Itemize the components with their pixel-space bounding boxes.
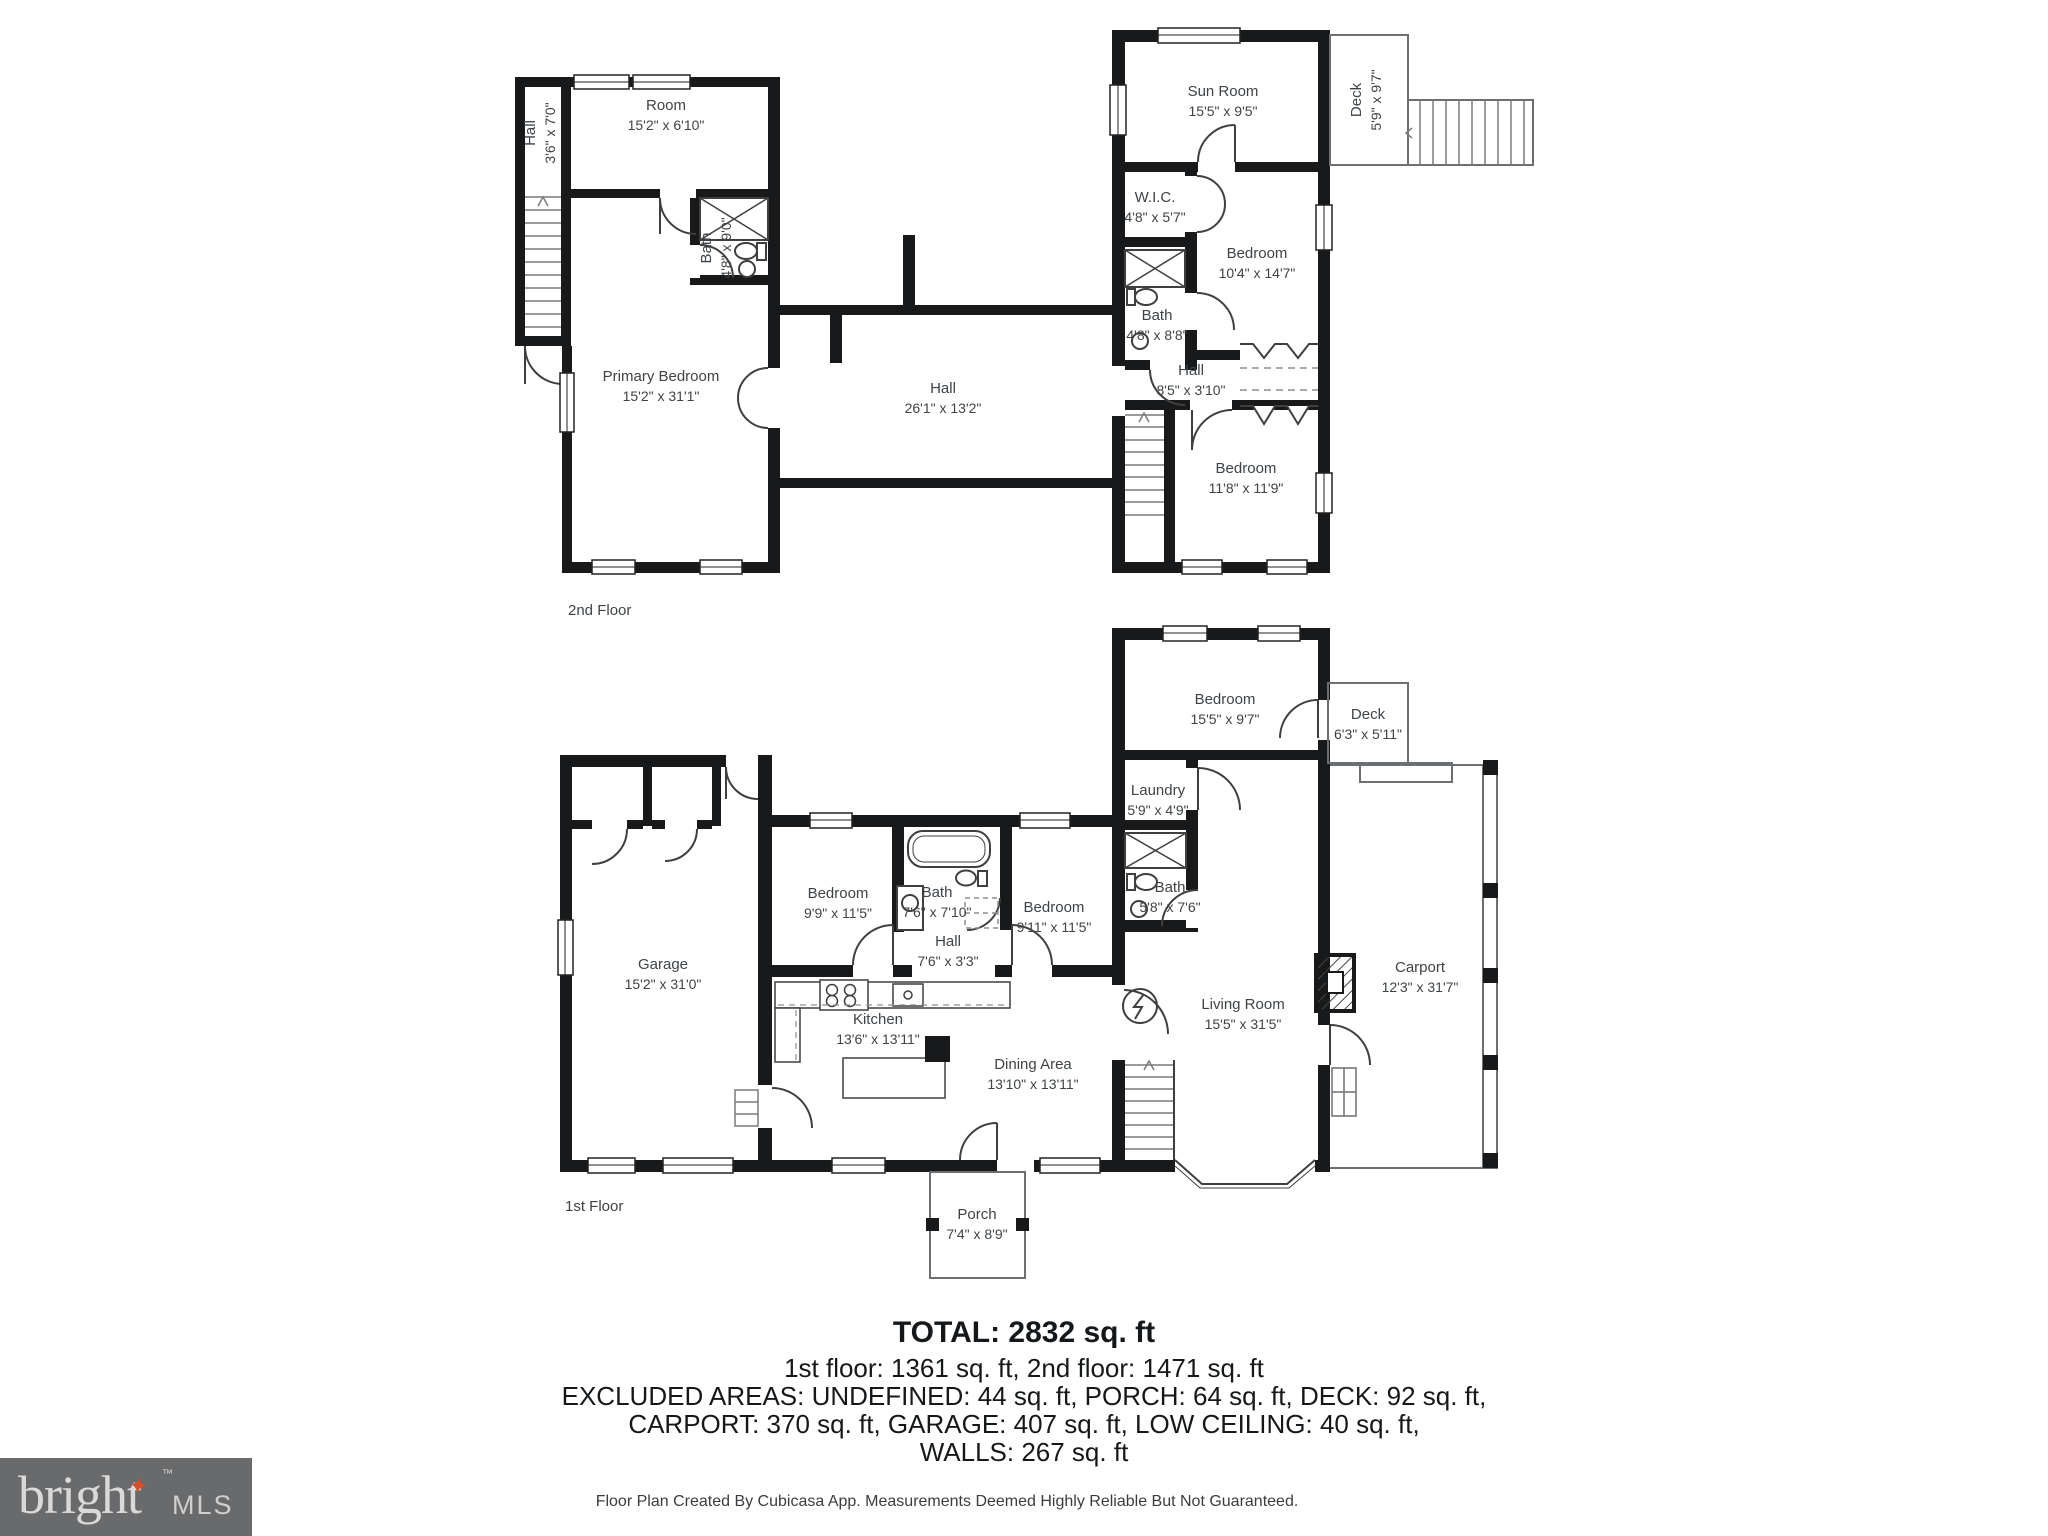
room-label-porch: Porch7'4" x 8'9": [946, 1205, 1007, 1243]
floor2-ext-stairs: [1406, 100, 1524, 165]
logo-trademark: ™: [162, 1468, 173, 1480]
carport-stoop: [1332, 1068, 1356, 1116]
floor2-low-ceiling: [1240, 344, 1318, 424]
floor2-stairs-right: [1125, 413, 1164, 515]
room-label-deck-upper: Deck5'9" x 9'7": [1347, 69, 1385, 130]
room-label-kitchen: Kitchen13'6" x 13'11": [836, 1010, 920, 1048]
disclaimer-text: Floor Plan Created By Cubicasa App. Meas…: [596, 1493, 1299, 1511]
floor-areas: 1st floor: 1361 sq. ft, 2nd floor: 1471 …: [0, 1354, 2048, 1382]
room-label-living-room: Living Room15'5" x 31'5": [1201, 995, 1284, 1033]
room-label-deck-1f: Deck6'3" x 5'11": [1334, 705, 1402, 743]
floor1-label: 1st Floor: [565, 1198, 623, 1215]
room-label-bath-right-1f: Bath5'8" x 7'6": [1139, 878, 1200, 916]
room-label-bedroom-top-1f: Bedroom15'5" x 9'7": [1191, 690, 1260, 728]
room-label-bath-upper-right: Bath4'8" x 8'8": [1126, 306, 1187, 344]
room-label-hall-upper-right: Hall8'5" x 3'10": [1157, 361, 1226, 399]
room-label-bath-upper-left: Bath4'8" x 9'0": [697, 217, 735, 278]
fireplace: [1316, 955, 1354, 1011]
floor1-stairs: [1125, 1060, 1174, 1160]
floor2-fixtures: [735, 243, 1157, 349]
floor2-low-ceiling-dashes: [1240, 368, 1318, 390]
logo-suffix-text: MLS: [172, 1490, 234, 1521]
room-label-hall-upper-left: Hall3'6" x 7'0": [521, 102, 559, 163]
room-label-sun-room: Sun Room15'5" x 9'5": [1188, 82, 1259, 120]
room-label-room: Room15'2" x 6'10": [628, 96, 705, 134]
room-label-bath-mid-1f: Bath7'6" x 7'10": [903, 883, 972, 921]
room-label-wic: W.I.C.4'8" x 5'7": [1124, 188, 1185, 226]
floor-plan-drawing: [0, 0, 2048, 1536]
walls-area: WALLS: 267 sq. ft: [0, 1438, 2048, 1466]
floor-plan-page: { "floors": [ { "label": "2nd Floor", "r…: [0, 0, 2048, 1536]
logo-brand-text: bright: [18, 1464, 141, 1526]
bright-mls-logo: bright ✦ ™ MLS: [0, 1458, 252, 1536]
logo-star-icon: ✦: [126, 1471, 150, 1503]
room-label-dining-area: Dining Area13'10" x 13'11": [987, 1055, 1078, 1093]
room-label-bedroom-lower-right: Bedroom11'8" x 11'9": [1209, 459, 1284, 497]
excluded-areas-2: CARPORT: 370 sq. ft, GARAGE: 407 sq. ft,…: [0, 1410, 2048, 1438]
area-summary: TOTAL: 2832 sq. ft 1st floor: 1361 sq. f…: [0, 1317, 2048, 1466]
room-label-bedroom-upper-right: Bedroom10'4" x 14'7": [1219, 244, 1296, 282]
room-label-hall-1f: Hall7'6" x 3'3": [917, 932, 978, 970]
electrical-symbol: [1123, 989, 1157, 1023]
floor2-stairs-left: [525, 197, 561, 327]
refrigerator: [925, 1036, 950, 1062]
room-label-laundry: Laundry5'9" x 4'9": [1127, 781, 1188, 819]
carport-posts: [1483, 760, 1498, 1168]
room-label-hall-center: Hall26'1" x 13'2": [905, 379, 982, 417]
room-label-carport: Carport12'3" x 31'7": [1382, 958, 1459, 996]
room-label-bedroom-left-1f: Bedroom9'9" x 11'5": [804, 884, 872, 922]
room-label-garage: Garage15'2" x 31'0": [625, 955, 702, 993]
room-label-primary-bedroom: Primary Bedroom15'2" x 31'1": [603, 367, 720, 405]
excluded-areas-1: EXCLUDED AREAS: UNDEFINED: 44 sq. ft, PO…: [0, 1382, 2048, 1410]
room-label-bedroom-mid-1f: Bedroom9'11" x 11'5": [1017, 898, 1092, 936]
garage-steps: [735, 1090, 758, 1126]
total-area: TOTAL: 2832 sq. ft: [0, 1317, 2048, 1349]
floor2-label: 2nd Floor: [568, 602, 631, 619]
floor1-door-openings: [726, 700, 1330, 1172]
